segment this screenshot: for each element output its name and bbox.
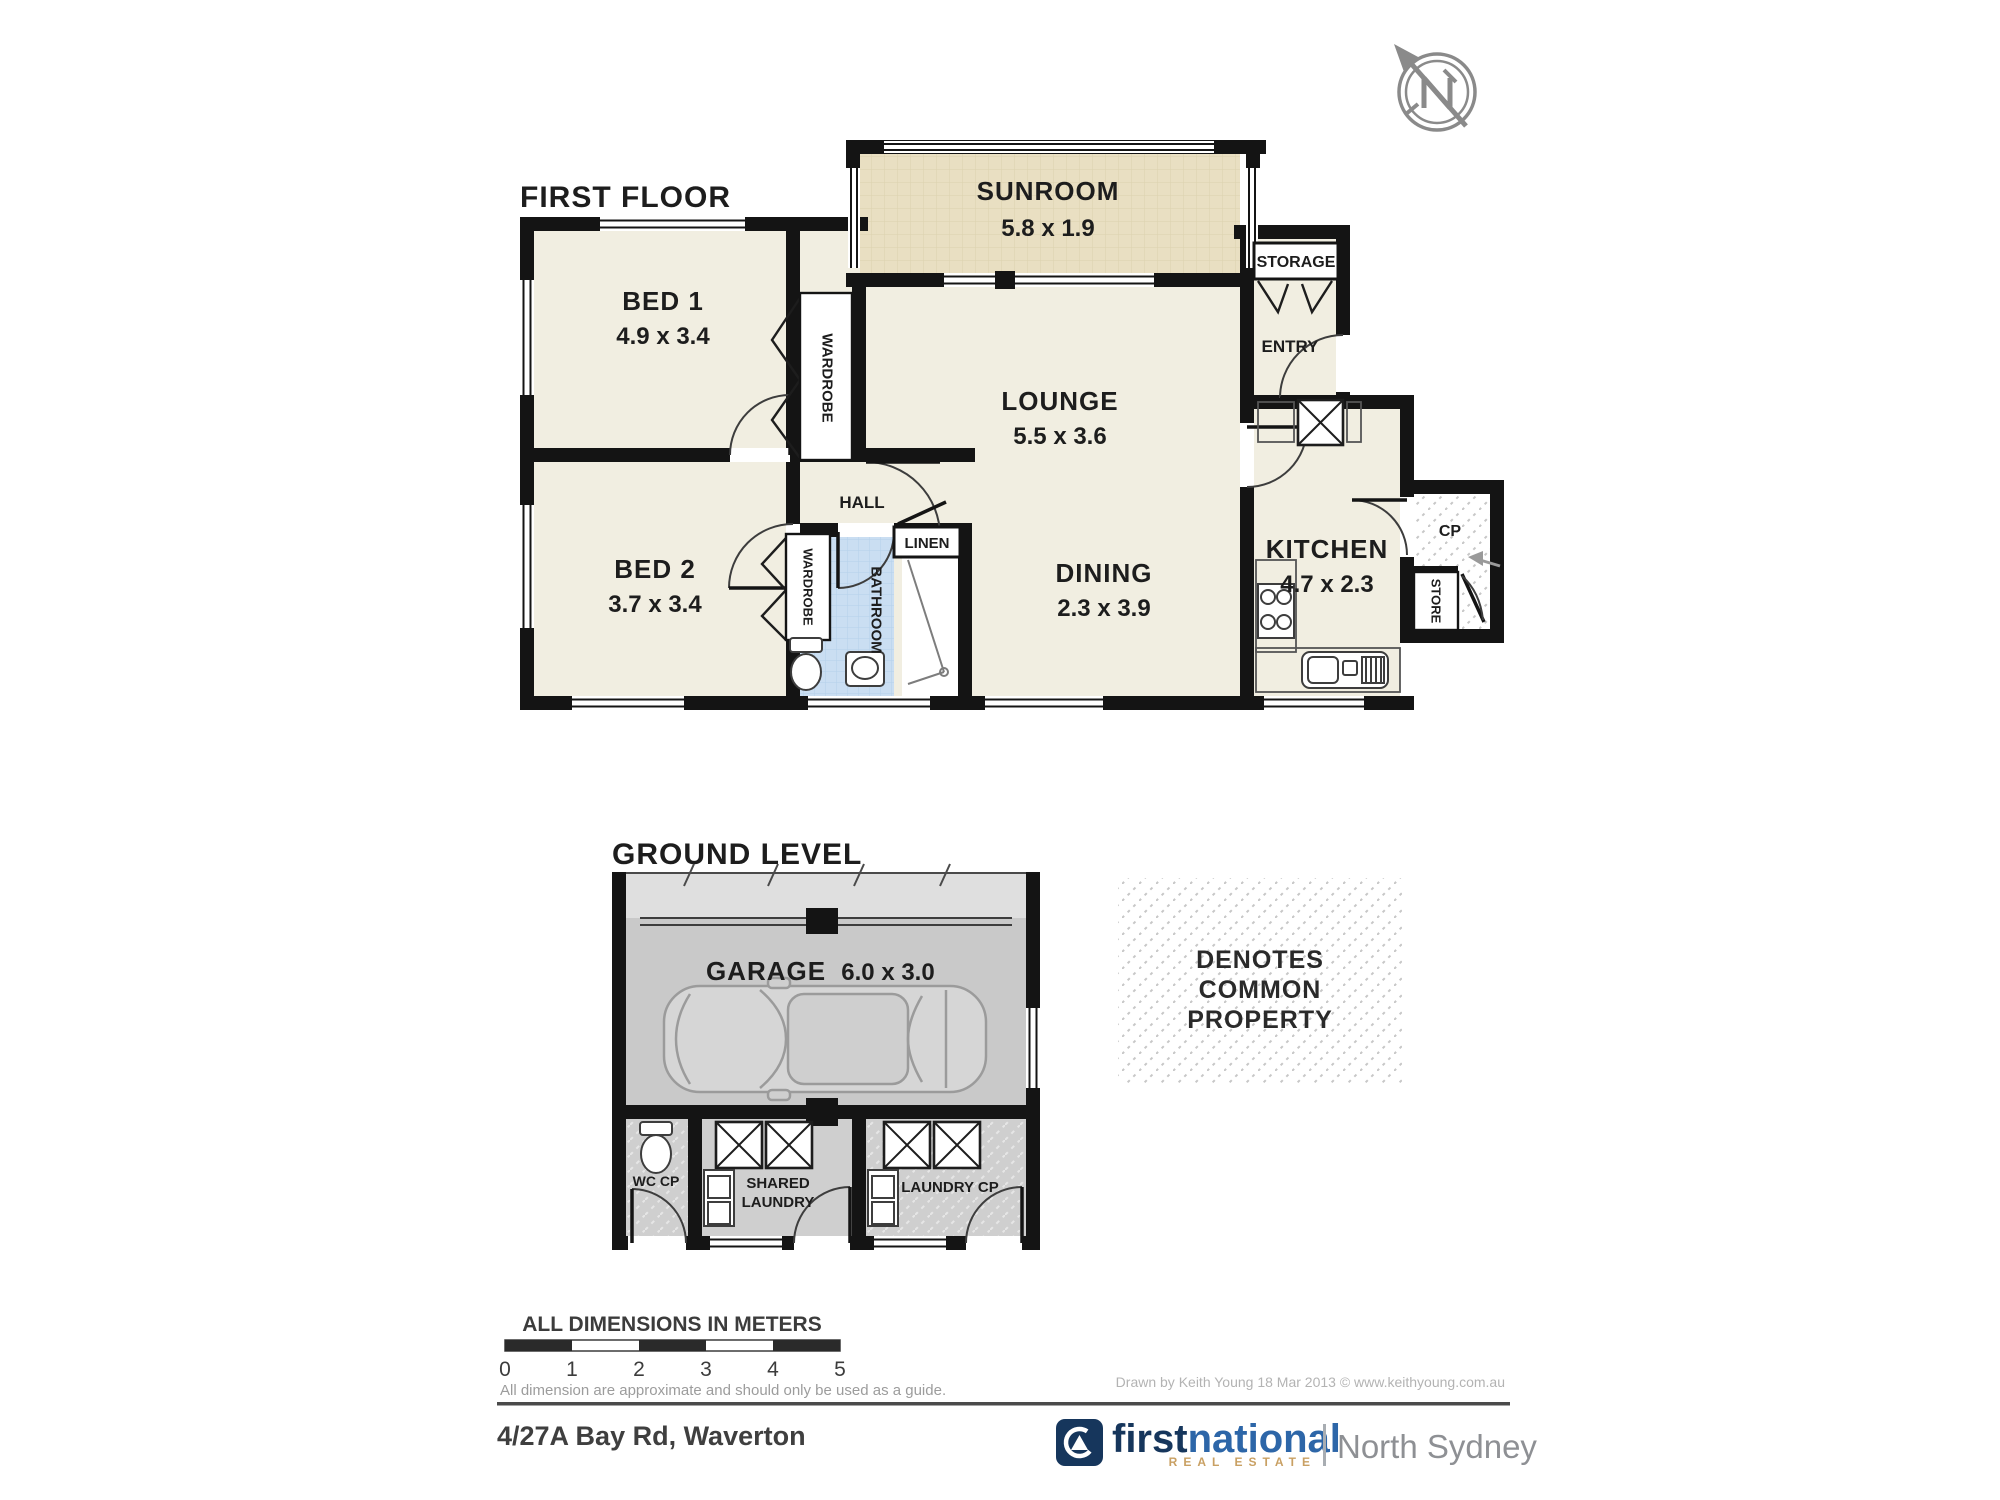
shared-laundry-label-1: SHARED xyxy=(746,1175,810,1192)
wc-toilet-icon xyxy=(640,1122,672,1135)
wc-label: WC CP xyxy=(633,1173,680,1189)
shared-laundry-label-2: LAUNDRY xyxy=(742,1194,815,1211)
sunroom-grid xyxy=(860,154,1240,273)
scale-tick-0: 0 xyxy=(499,1358,511,1381)
toilet-icon xyxy=(790,638,822,652)
hall-label: HALL xyxy=(839,493,884,512)
kitchen-label: KITCHEN xyxy=(1266,534,1389,564)
wardrobe-bed2-label: WARDROBE xyxy=(801,548,816,626)
sunroom-label: SUNROOM xyxy=(977,176,1120,206)
first-floor-plan: FIRST FLOOR xyxy=(520,140,1504,710)
brand-tagline: REAL ESTATE xyxy=(1169,1455,1316,1469)
garage-dims: 6.0 x 3.0 xyxy=(841,959,934,986)
drawn-by-credit: Drawn by Keith Young 18 Mar 2013 © www.k… xyxy=(1116,1374,1505,1390)
legend-line-1: DENOTES xyxy=(1196,946,1324,974)
wc-fixtures xyxy=(640,1122,672,1173)
store-label: STORE xyxy=(1429,579,1444,624)
shower-fill xyxy=(902,551,958,696)
compass-north-icon xyxy=(1394,44,1475,130)
sink-icon xyxy=(1302,652,1388,688)
brand-logo: firstnational REAL ESTATE North Sydney xyxy=(1056,1417,1537,1469)
storage-label: STORAGE xyxy=(1257,254,1336,271)
cp-label: CP xyxy=(1439,523,1462,540)
bathroom-label: BATHROOM xyxy=(868,566,885,653)
ground-level-title: GROUND LEVEL xyxy=(612,838,862,871)
dining-label: DINING xyxy=(1056,558,1153,588)
ground-level-plan: GROUND LEVEL xyxy=(612,838,1040,1250)
bed2-label: BED 2 xyxy=(614,554,696,584)
scale-tick-4: 4 xyxy=(767,1358,779,1381)
bed1-label: BED 1 xyxy=(622,286,704,316)
floorplan-drawing: FIRST FLOOR xyxy=(0,0,2000,1500)
scale-tick-1: 1 xyxy=(566,1358,578,1381)
car-top-view-icon xyxy=(664,978,986,1100)
floorplan-page: FIRST FLOOR xyxy=(0,0,2000,1500)
scale-tick-3: 3 xyxy=(700,1358,712,1381)
garage-window xyxy=(1026,1008,1040,1088)
scale-tick-2: 2 xyxy=(633,1358,645,1381)
legend-line-2: COMMON xyxy=(1199,976,1322,1004)
garage-label: GARAGE xyxy=(706,956,826,986)
bed2-dims: 3.7 x 3.4 xyxy=(608,591,702,618)
sunroom-door-threshold xyxy=(995,271,1015,289)
brand-separator xyxy=(1323,1424,1326,1466)
first-floor-title: FIRST FLOOR xyxy=(520,181,731,214)
bed1-dims: 4.9 x 3.4 xyxy=(616,323,710,350)
scale-bar: ALL DIMENSIONS IN METERS 0 1 2 3 4 5 All… xyxy=(499,1313,946,1399)
lounge-label: LOUNGE xyxy=(1001,386,1118,416)
entry-label: ENTRY xyxy=(1262,337,1320,356)
laundry-cp-label: LAUNDRY CP xyxy=(901,1179,999,1196)
sunroom-dims: 5.8 x 1.9 xyxy=(1001,215,1094,242)
footer-divider xyxy=(497,1402,1510,1406)
kitchen-dims: 4.7 x 2.3 xyxy=(1280,571,1373,598)
dining-dims: 2.3 x 3.9 xyxy=(1057,595,1150,622)
brand-office: North Sydney xyxy=(1337,1428,1537,1465)
property-address: 4/27A Bay Rd, Waverton xyxy=(497,1421,806,1451)
legend-line-3: PROPERTY xyxy=(1187,1006,1333,1034)
common-property-legend: DENOTES COMMON PROPERTY xyxy=(1118,878,1402,1083)
scale-title: ALL DIMENSIONS IN METERS xyxy=(522,1313,821,1336)
lounge-dims: 5.5 x 3.6 xyxy=(1013,423,1106,450)
scale-disclaimer: All dimension are approximate and should… xyxy=(500,1382,946,1399)
linen-label: LINEN xyxy=(905,535,950,552)
scale-tick-5: 5 xyxy=(834,1358,846,1381)
wardrobe-bed1-label: WARDROBE xyxy=(819,333,836,422)
